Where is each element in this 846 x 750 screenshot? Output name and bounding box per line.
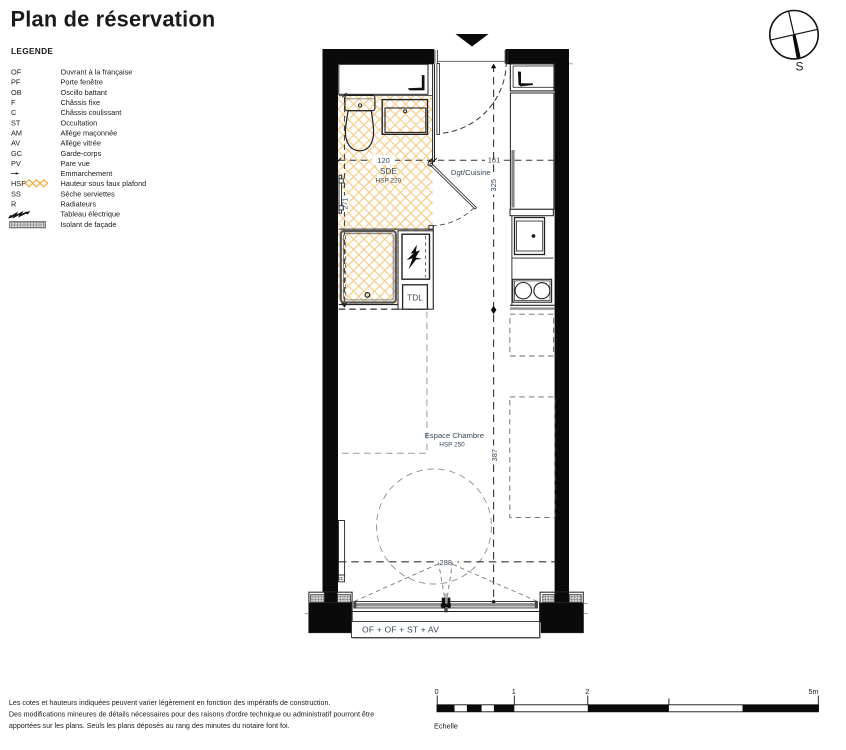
svg-text:SS: SS: [11, 189, 21, 198]
svg-text:Emmarchement: Emmarchement: [61, 169, 113, 178]
svg-text:Isolant de façade: Isolant de façade: [61, 220, 117, 229]
svg-text:PV: PV: [11, 159, 21, 168]
svg-text:387: 387: [490, 449, 499, 462]
svg-text:F: F: [11, 98, 16, 107]
svg-text:Châssis fixe: Châssis fixe: [61, 98, 101, 107]
svg-text:OF + OF + ST + AV: OF + OF + ST + AV: [362, 624, 439, 634]
svg-text:OB: OB: [11, 88, 22, 97]
svg-text:Tableau électrique: Tableau électrique: [61, 210, 121, 219]
svg-text:TDL: TDL: [407, 293, 423, 303]
svg-text:PF: PF: [11, 78, 21, 87]
svg-text:Allège vitrée: Allège vitrée: [61, 139, 101, 148]
svg-text:1: 1: [512, 687, 516, 696]
svg-text:Pare vue: Pare vue: [61, 159, 90, 168]
svg-text:2: 2: [585, 687, 589, 696]
svg-text:Dgt/Cuisine: Dgt/Cuisine: [451, 168, 491, 177]
svg-text:S: S: [795, 60, 803, 74]
svg-text:HSP 250: HSP 250: [439, 442, 465, 449]
svg-text:R: R: [340, 576, 346, 580]
svg-text:Ouvrant à la française: Ouvrant à la française: [61, 68, 133, 77]
svg-text:Plan de réservation: Plan de réservation: [11, 7, 216, 32]
svg-text:GC: GC: [11, 149, 23, 158]
svg-text:325: 325: [489, 179, 498, 192]
svg-text:Hauteur sous faux plafond: Hauteur sous faux plafond: [61, 179, 147, 188]
svg-text:HSP 220: HSP 220: [376, 177, 402, 184]
svg-text:288: 288: [440, 558, 453, 567]
svg-text:Occultation: Occultation: [61, 118, 98, 127]
svg-text:SDE: SDE: [380, 167, 397, 176]
svg-text:Porte fenêtre: Porte fenêtre: [61, 78, 103, 87]
svg-text:Espace Chambre: Espace Chambre: [425, 431, 484, 440]
svg-text:0: 0: [435, 687, 439, 696]
svg-text:Echelle: Echelle: [434, 722, 458, 731]
svg-text:Allège maçonnée: Allège maçonnée: [61, 129, 118, 138]
svg-text:Garde-corps: Garde-corps: [61, 149, 102, 158]
svg-text:Sèche serviettes: Sèche serviettes: [61, 189, 116, 198]
svg-text:Châssis coulissant: Châssis coulissant: [61, 108, 122, 117]
svg-text:ST: ST: [11, 118, 21, 127]
svg-text:Oscillo battant: Oscillo battant: [61, 88, 108, 97]
svg-text:HSP: HSP: [11, 179, 26, 188]
svg-text:120: 120: [377, 156, 390, 165]
svg-text:OF: OF: [11, 68, 22, 77]
svg-text:Les cotes et hauteurs indiquée: Les cotes et hauteurs indiquées peuvent …: [9, 699, 331, 707]
svg-text:R: R: [11, 200, 16, 209]
svg-text:apportées sur les plans. Seuls: apportées sur les plans. Seuls les plans…: [9, 722, 290, 730]
svg-text:Radiateurs: Radiateurs: [61, 200, 97, 209]
svg-text:C: C: [11, 108, 17, 117]
svg-text:AV: AV: [11, 139, 20, 148]
svg-text:AM: AM: [11, 129, 22, 138]
svg-text:5m: 5m: [809, 687, 819, 696]
svg-text:Des modifications mineures de: Des modifications mineures de détails né…: [9, 710, 374, 718]
svg-text:LEGENDE: LEGENDE: [11, 46, 53, 56]
